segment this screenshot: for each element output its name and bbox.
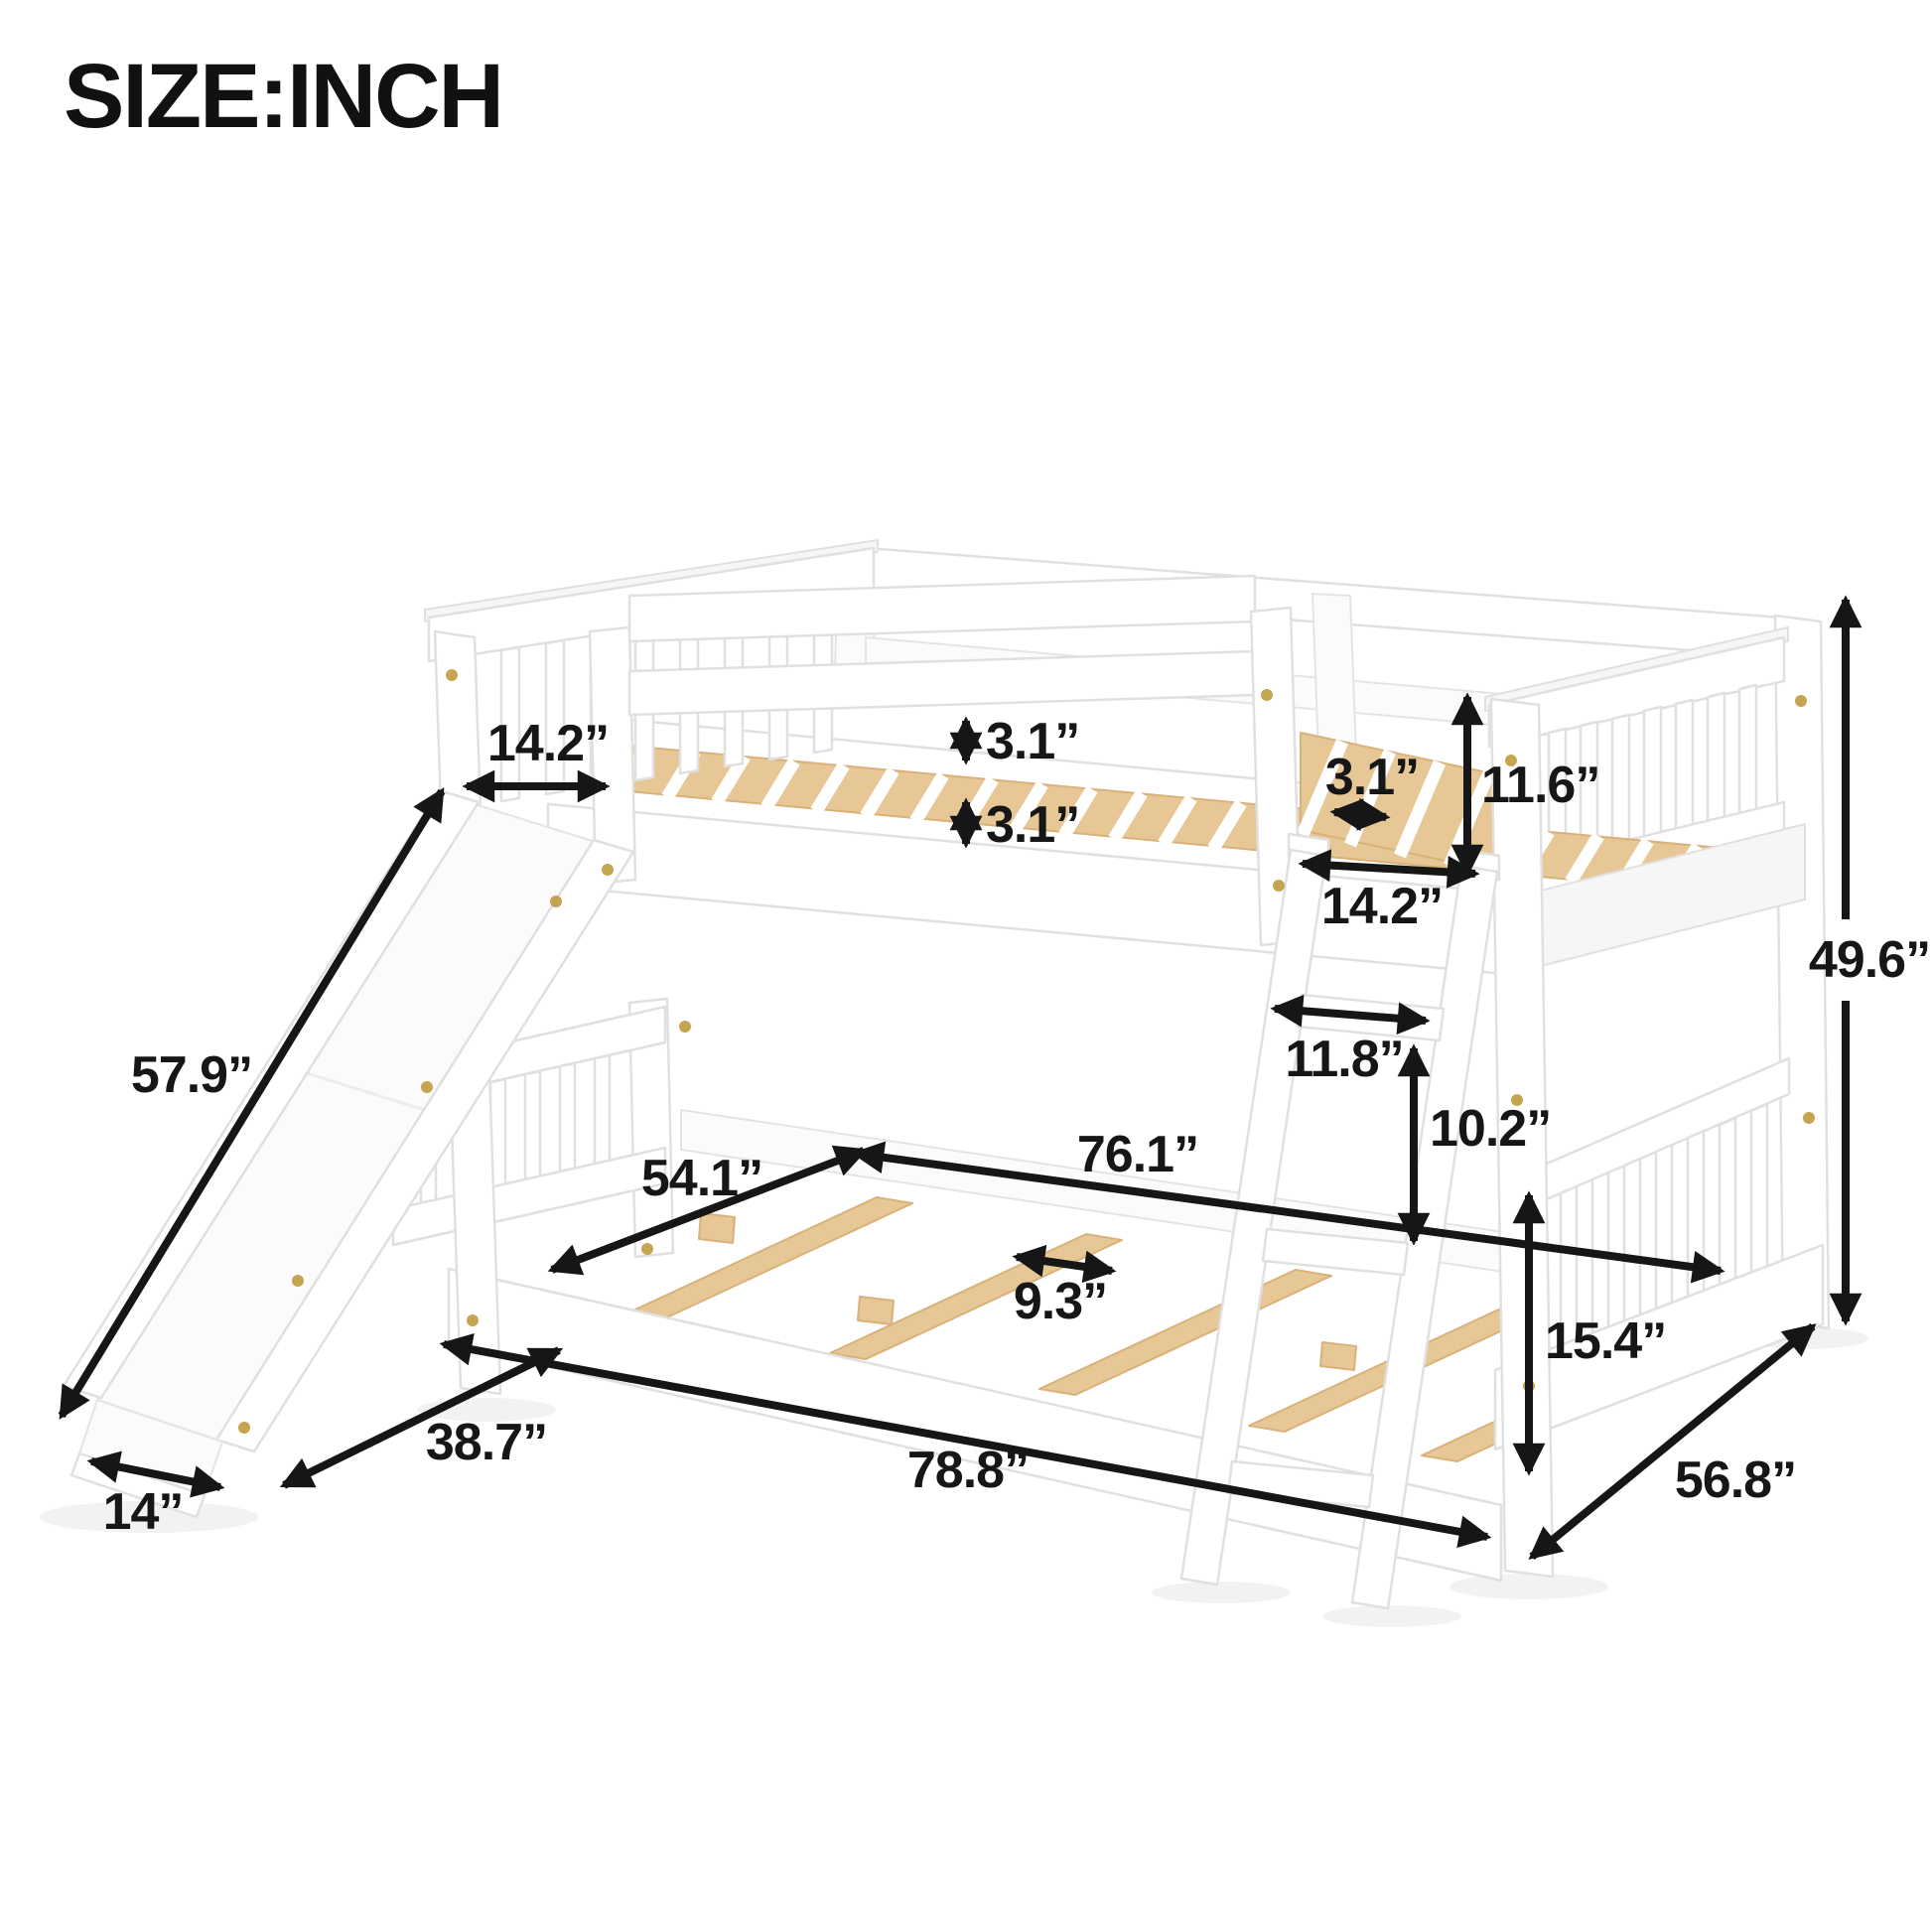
dim-label: 3.1” (1325, 749, 1419, 806)
dim-label: 14” (103, 1483, 184, 1541)
dim-overall-length: 78.8” (444, 1344, 1487, 1537)
dim-label: 57.9” (131, 1046, 252, 1104)
dim-slide-top-opening: 14.2” (467, 715, 609, 786)
bottom-front-frame-rail (449, 1269, 1501, 1581)
dim-label: 49.6” (1809, 931, 1930, 989)
dim-label: 54.1” (641, 1150, 762, 1207)
dim-label: 78.8” (907, 1442, 1029, 1499)
page-title: SIZE:INCH (64, 46, 502, 147)
dim-label: 56.8” (1675, 1451, 1796, 1509)
dim-label: 10.2” (1430, 1100, 1551, 1158)
dim-label: 14.2” (487, 715, 609, 772)
dim-label: 3.1” (986, 796, 1079, 854)
dim-label: 9.3” (1014, 1273, 1107, 1330)
dim-label: 15.4” (1545, 1312, 1666, 1370)
dim-label: 11.8” (1285, 1031, 1403, 1088)
dim-label: 11.6” (1481, 757, 1599, 814)
bunk-bed-size-figure: SIZE:INCH 14.2” 3.1” 3.1” 3.1” 11.6” (0, 0, 1932, 1932)
dim-label: 76.1” (1077, 1126, 1198, 1183)
dim-label: 14.2” (1321, 878, 1443, 935)
dim-label: 3.1” (986, 713, 1079, 770)
dimension-diagram: SIZE:INCH 14.2” 3.1” 3.1” 3.1” 11.6” (0, 0, 1932, 1932)
back-rail-connector (1312, 594, 1356, 755)
dim-slide-footprint: 38.7” (284, 1350, 559, 1485)
dim-label: 38.7” (426, 1414, 547, 1471)
